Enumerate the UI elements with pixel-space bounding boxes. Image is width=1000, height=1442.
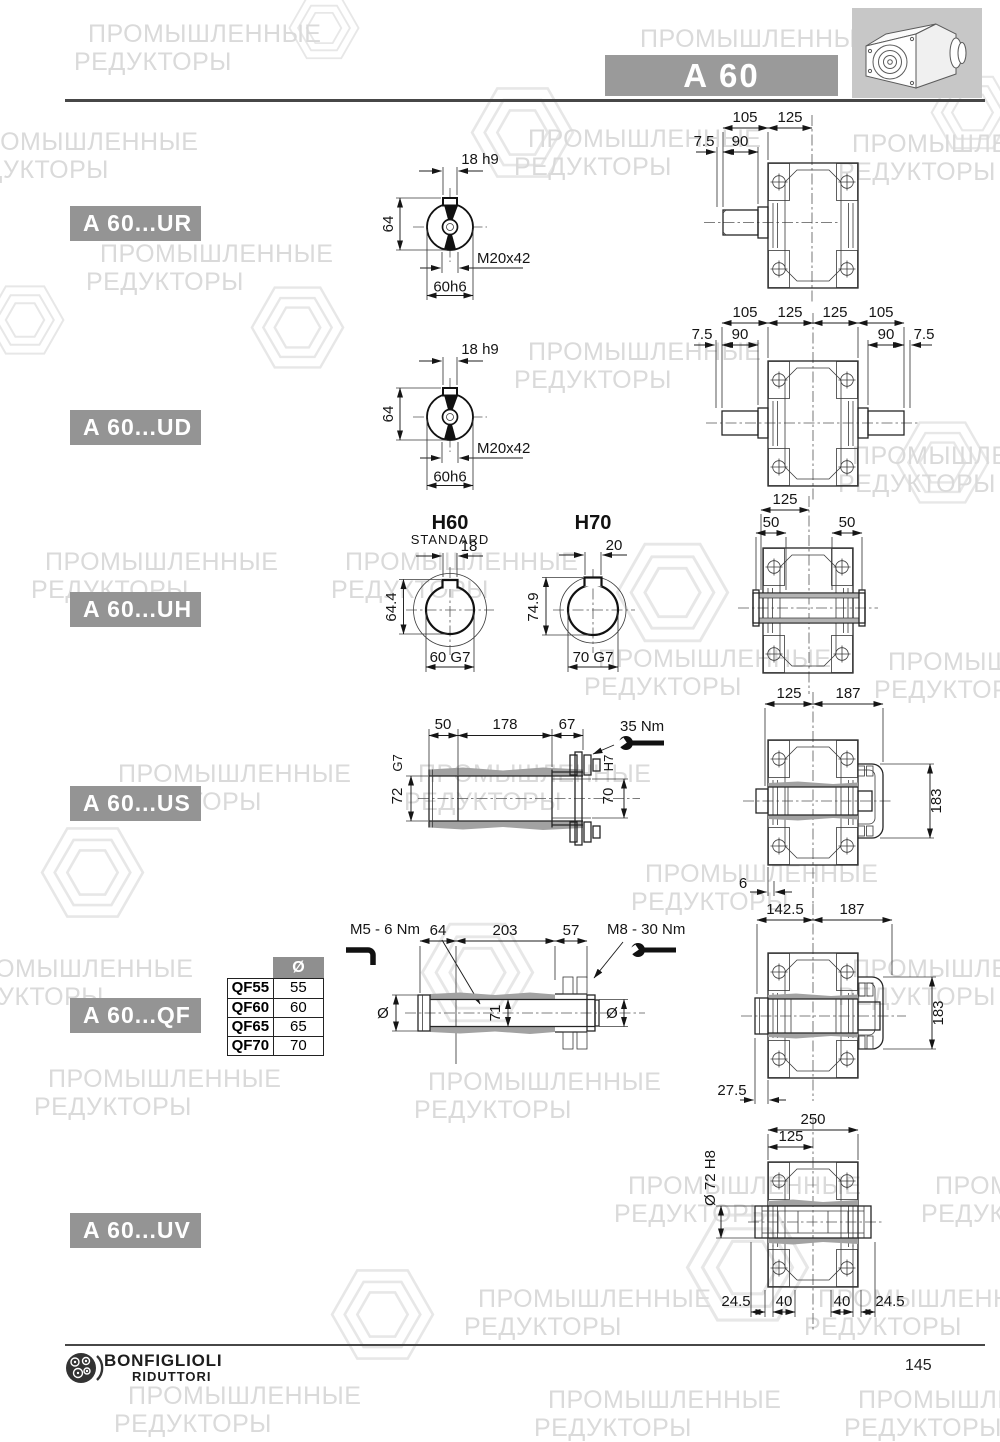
uh-h70-bore-dim: 70 G7 [573,649,614,666]
qf-torque-left-label: M5 - 6 Nm [350,921,420,938]
footer-rule [65,1344,985,1346]
ur-keyway-dim: 18 h9 [461,151,499,168]
ur-thread-label: M20x42 [477,250,530,267]
ur-shaft-end-drawing: 18 h9 64 M20x42 60h6 [385,148,560,308]
uh-h60-bore-dim: 60 G7 [430,649,471,666]
watermark: ПРОМЫШЛЕННЫЕРЕДУКТОРЫ [478,1285,711,1341]
ur-diameter-dim: 60h6 [433,279,466,296]
brand-subname: RIDUTTORI [132,1369,222,1384]
qf-dim-203: 203 [492,922,517,939]
qf-dia-right-symbol: Ø [606,1005,618,1022]
catalog-page: { "watermark": {"line1": "ПРОМЫШЛЕННЫЕ",… [0,0,1000,1415]
uh-h60-subtitle: STANDARD [411,532,490,547]
qf-torque-right-label: M8 - 30 Nm [607,921,685,938]
ur-front-view-drawing: 105 125 7.5 90 [688,103,988,308]
section-label-ud: A 60...UD [70,410,201,445]
ur-front-dim-105: 105 [732,109,757,126]
uh-front-view-drawing: 125 50 50 [726,490,991,700]
table-row: QF70 70 [228,1036,323,1055]
ud-shaft-end-drawing: 18 h9 64 M20x42 60h6 [385,338,560,498]
us-dia-right: 70 [600,788,617,805]
qf-dim-57: 57 [563,922,580,939]
watermark: ПРОМЫШЛЕННЫЕРЕДУКТОРЫ [88,20,321,76]
qf-front-dim-187: 187 [839,901,864,918]
uv-front-dim-125: 125 [778,1128,803,1145]
us-front-dim-187: 187 [835,685,860,702]
ur-front-dim-7-5: 7.5 [694,133,715,150]
qf-bore-dim: 71 [487,1005,504,1022]
hexagon-watermark-icon [40,820,145,925]
us-dim-178: 178 [492,716,517,733]
us-fit-left: G7 [390,754,405,771]
us-front-dim-183: 183 [928,788,945,813]
qf-type-cell: QF65 [228,1018,274,1036]
uh-h60-title: H60 [432,512,469,534]
qf-front-dim-142-5: 142.5 [766,901,804,918]
ud-diameter-dim: 60h6 [433,469,466,486]
section-label-qf: A 60...QF [70,998,201,1033]
us-side-view-drawing: 50 178 67 35 Nm G7 72 H7 70 [378,695,708,863]
qf-type-cell: QF60 [228,999,274,1017]
ud-front-dim-105-left: 105 [732,304,757,321]
uh-h60-keyway-dim: 18 [461,538,478,555]
us-fit-right: H7 [601,755,616,772]
table-row: QF55 55 [228,979,323,998]
uh-h70-keyway-dim: 20 [606,537,623,554]
hexagon-watermark-icon [0,280,65,360]
page-number: 145 [905,1357,932,1375]
us-front-dim-6: 6 [739,875,747,892]
ud-front-view-drawing: 105 125 125 105 7.5 90 90 7.5 [678,303,1000,508]
uv-dim-24-5-left: 24.5 [721,1293,750,1310]
section-label-uh: A 60...UH [70,592,201,627]
uv-dim-40-left: 40 [776,1293,793,1310]
us-dim-50: 50 [435,716,452,733]
ud-front-dim-125-right: 125 [822,304,847,321]
section-label-us: A 60...US [70,786,201,821]
uh-front-dim-50-left: 50 [763,514,780,531]
qf-front-view-drawing: 142.5 187 183 27.5 [696,896,1000,1114]
qf-dia-cell: 70 [274,1037,323,1055]
us-front-view-drawing: 125 187 183 6 [688,688,988,920]
uv-bore-dim: Ø 72 H8 [702,1150,719,1206]
watermark: ПРОМЫШЛЕННЫЕРЕДУКТОРЫ [0,128,198,184]
table-row: QF65 65 [228,1017,323,1036]
ud-front-dim-7-5-left: 7.5 [692,326,713,343]
watermark: ПРОМЫШЛЕННЫЕРЕДУКТОРЫ [858,1386,1000,1442]
us-torque-label: 35 Nm [620,718,664,735]
ur-front-dim-125: 125 [777,109,802,126]
ud-height-dim: 64 [380,406,397,423]
qf-dia-cell: 65 [274,1018,323,1036]
uh-bore-drawings: H60 STANDARD 18 64.4 60 G7 H70 20 74.9 7… [388,505,688,695]
qf-type-cell: QF70 [228,1037,274,1055]
qf-front-dim-183: 183 [930,1000,947,1025]
qf-type-cell: QF55 [228,979,274,998]
qf-front-dim-27-5: 27.5 [717,1082,746,1099]
qf-dia-cell: 55 [274,979,323,998]
ud-front-dim-90-left: 90 [732,326,749,343]
hexagon-watermark-icon [330,1262,435,1367]
qf-dim-64: 64 [430,922,447,939]
wrench-icon [615,736,664,750]
uv-dim-40-right: 40 [834,1293,851,1310]
qf-dia-cell: 60 [274,999,323,1017]
watermark: ПРОМЫШЛЕННЫЕРЕДУКТОРЫ [548,1386,781,1442]
us-dia-left: 72 [389,788,406,805]
ud-thread-label: M20x42 [477,440,530,457]
us-front-dim-125: 125 [776,685,801,702]
qf-dia-left-symbol: Ø [377,1005,389,1022]
gearbox-photo-thumbnail [852,8,982,98]
wrench-icon [627,943,676,957]
ud-front-dim-105-right: 105 [868,304,893,321]
footer-brand: BONFIGLIOLI RIDUTTORI [104,1352,222,1384]
page-title: A 60 [605,55,838,96]
section-label-uv: A 60...UV [70,1213,201,1248]
uv-front-dim-250: 250 [800,1111,825,1128]
uv-front-view-drawing: 250 125 Ø 72 H8 24.5 40 40 24.5 [688,1110,1000,1345]
ur-front-dim-90: 90 [732,133,749,150]
header-rule [65,99,985,102]
section-label-ur: A 60...UR [70,206,201,241]
watermark: ПРОМЫШЛЕННЫЕРЕДУКТОРЫ [128,1382,361,1438]
uh-front-dim-125: 125 [772,491,797,508]
qf-table-header: Ø [273,957,324,978]
table-row: QF60 60 [228,998,323,1017]
allen-key-icon [346,950,373,965]
ud-front-dim-125-left: 125 [777,304,802,321]
ur-height-dim: 64 [380,216,397,233]
ud-keyway-dim: 18 h9 [461,341,499,358]
ud-front-dim-7-5-right: 7.5 [914,326,935,343]
uh-h70-height-dim: 74.9 [525,592,542,621]
ud-front-dim-90-right: 90 [878,326,895,343]
uh-h70-title: H70 [575,512,612,534]
bonfiglioli-logo-icon [64,1350,104,1388]
us-dim-67: 67 [559,716,576,733]
uh-front-dim-50-right: 50 [839,514,856,531]
uh-h60-height-dim: 64.4 [383,592,400,621]
brand-name: BONFIGLIOLI [104,1352,222,1369]
qf-side-view-drawing: M5 - 6 Nm M8 - 30 Nm 64 203 57 71 Ø Ø [330,922,695,1097]
uv-dim-24-5-right: 24.5 [875,1293,904,1310]
watermark: ПРОМЫШЛЕННЫЕРЕДУКТОРЫ [48,1065,281,1121]
watermark: ПРОМЫШЛЕННЫЕРЕДУКТОРЫ [100,240,333,296]
